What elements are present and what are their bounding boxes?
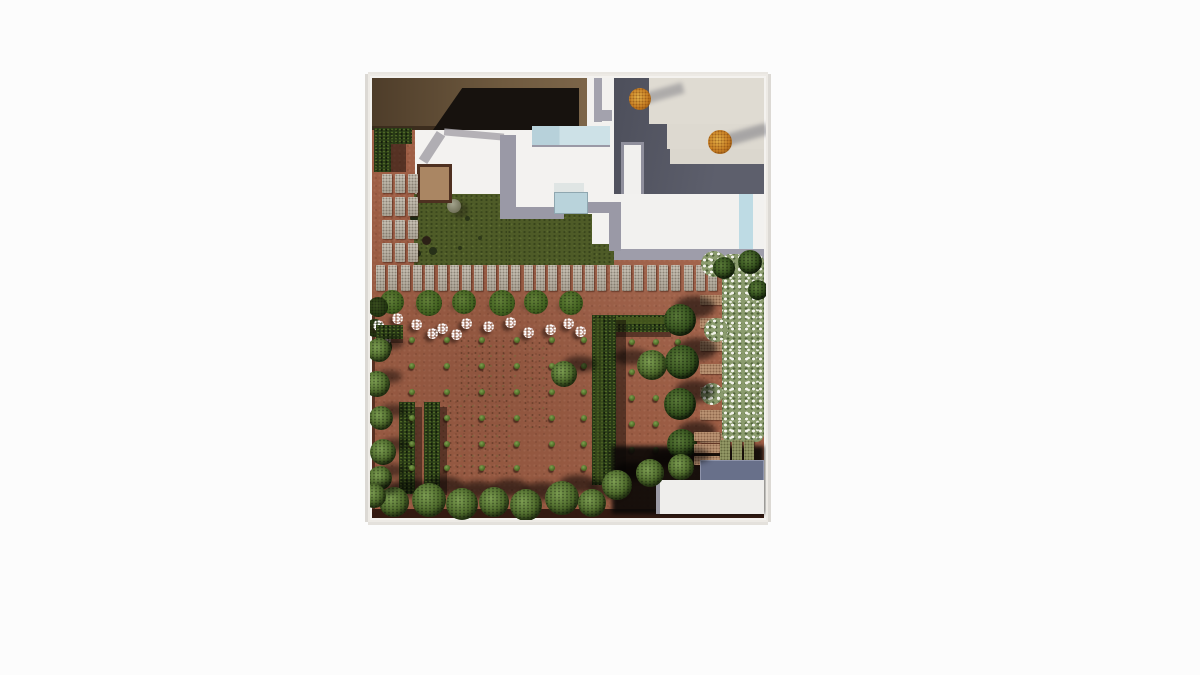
plant-grid-left <box>409 465 415 471</box>
lawn-plant <box>458 246 462 250</box>
tree <box>510 489 542 521</box>
stepping-stone-row <box>671 265 680 291</box>
stepping-stone <box>395 220 405 239</box>
shrub <box>368 297 388 317</box>
lawn-plant <box>429 247 437 255</box>
amber-tree <box>629 88 651 110</box>
shrub <box>524 290 548 314</box>
plant-grid-left <box>514 465 520 471</box>
plant-grid-left <box>444 389 450 395</box>
stepping-stone-row <box>511 265 520 291</box>
stepping-stone-row <box>388 265 397 291</box>
stepping-stone-row <box>474 265 483 291</box>
stepping-stone-row <box>413 265 422 291</box>
lawn <box>507 214 592 265</box>
tree <box>551 361 577 387</box>
stepping-stone-row <box>548 265 557 291</box>
tree <box>664 388 696 420</box>
plant-grid-left <box>409 441 415 447</box>
stepping-stone-row <box>376 265 385 291</box>
stepping-stone-row <box>684 265 693 291</box>
plant-grid-left <box>549 465 555 471</box>
plant-grid-right <box>653 421 659 427</box>
flower-cluster <box>483 321 494 332</box>
stepping-stone-row <box>536 265 545 291</box>
tree <box>748 280 768 300</box>
plant-grid-left <box>409 415 415 421</box>
plant-grid-left <box>581 441 587 447</box>
shrub <box>489 290 515 316</box>
tree <box>446 488 478 520</box>
tree <box>636 459 664 487</box>
tree <box>369 406 393 430</box>
stepping-stone <box>408 174 418 193</box>
plant-grid-left <box>581 465 587 471</box>
stepping-stone <box>720 440 730 461</box>
stepping-stone <box>382 197 392 216</box>
stepping-stone-row <box>487 265 496 291</box>
lawn-plant <box>465 216 470 221</box>
building-roof <box>658 480 764 514</box>
stepping-stone-row <box>425 265 434 291</box>
flowering-hedge <box>704 318 728 342</box>
plant-grid-left <box>514 389 520 395</box>
plant-grid-right <box>629 421 635 427</box>
shrub <box>452 290 476 314</box>
plant-grid-left <box>479 389 485 395</box>
stepping-stone-row <box>561 265 570 291</box>
plant-grid-left <box>581 415 587 421</box>
stepping-stone <box>395 174 405 193</box>
shrub <box>559 291 583 315</box>
flower-cluster <box>563 318 574 329</box>
stepping-stone <box>408 197 418 216</box>
hedge <box>374 144 391 172</box>
lap-pool <box>739 194 753 249</box>
plant-grid-left <box>514 415 520 421</box>
stepping-stone <box>395 197 405 216</box>
skylight-cube <box>554 192 588 214</box>
flower-cluster <box>523 327 534 338</box>
tree <box>738 250 762 274</box>
flower-cluster <box>461 318 472 329</box>
plant-grid-left <box>444 441 450 447</box>
amber-tree <box>708 130 732 154</box>
roof-path <box>609 202 621 251</box>
flower-cluster <box>575 326 586 337</box>
plant-grid-left <box>409 389 415 395</box>
tree <box>578 489 606 517</box>
stepping-stone-row <box>597 265 606 291</box>
plant-grid-left <box>549 415 555 421</box>
plant-grid-left <box>444 337 450 343</box>
tree <box>545 481 579 515</box>
stepping-stone-row <box>573 265 582 291</box>
hedge-top-face <box>595 318 603 482</box>
plant-grid-left <box>479 465 485 471</box>
plant-grid-left <box>444 465 450 471</box>
stepping-stone-row <box>659 265 668 291</box>
stepping-stone <box>382 174 392 193</box>
tree <box>412 483 446 517</box>
plant-grid-left <box>581 389 587 395</box>
stepping-stone-row <box>462 265 471 291</box>
plant-grid-left <box>444 363 450 369</box>
tree <box>713 257 735 279</box>
stepping-stone <box>694 432 720 441</box>
plant-grid-left <box>409 363 415 369</box>
flower-cluster <box>392 313 403 324</box>
stepping-stone-row <box>499 265 508 291</box>
stepping-stone-row <box>610 265 619 291</box>
tree <box>368 338 391 362</box>
stepping-stone-row <box>524 265 533 291</box>
plant-grid-right <box>653 339 659 345</box>
flower-cluster <box>437 323 448 334</box>
plant-grid-right <box>629 395 635 401</box>
plant-grid-left <box>514 441 520 447</box>
flower-cluster <box>545 324 556 335</box>
stepping-stone-row <box>585 265 594 291</box>
stepping-stone <box>382 220 392 239</box>
planter-box <box>417 164 452 203</box>
tree <box>637 350 667 380</box>
seedling-patch <box>440 398 512 474</box>
stepping-stone <box>408 243 418 262</box>
tree <box>665 345 699 379</box>
plant-grid-left <box>549 441 555 447</box>
plant-grid-left <box>479 415 485 421</box>
hedge-shadow <box>391 144 406 172</box>
stepping-stone-row <box>622 265 631 291</box>
stepping-stone-row <box>647 265 656 291</box>
plant-grid-left <box>444 415 450 421</box>
flower-cluster <box>411 319 422 330</box>
seedling-patch <box>458 338 516 400</box>
tree <box>479 487 509 517</box>
stepping-stone <box>395 243 405 262</box>
stepping-stone-row <box>401 265 410 291</box>
flower-cluster <box>505 317 516 328</box>
hedge <box>374 128 412 144</box>
plant-grid-left <box>549 389 555 395</box>
roof-wall <box>601 110 612 121</box>
plant-grid-left <box>549 337 555 343</box>
plant-grid-right <box>629 339 635 345</box>
tree <box>602 470 632 500</box>
tree <box>668 454 694 480</box>
plant-grid-left <box>479 441 485 447</box>
plant-grid-left <box>479 337 485 343</box>
seedling-patch <box>522 340 550 428</box>
tree <box>664 304 696 336</box>
stepping-stone <box>744 440 754 461</box>
flower-cluster <box>427 328 438 339</box>
tree <box>370 439 396 465</box>
plant-grid-left <box>479 363 485 369</box>
lawn-plant <box>422 236 431 245</box>
stepping-stone <box>382 243 392 262</box>
landscape-aerial-render <box>368 74 768 522</box>
shrub <box>416 290 442 316</box>
stepping-stone <box>732 440 742 461</box>
stepping-stone <box>408 220 418 239</box>
skylight-pool <box>532 126 610 147</box>
terrace-upper <box>649 78 764 124</box>
plant-grid-left <box>581 337 587 343</box>
stepping-stone-row <box>438 265 447 291</box>
stepping-stone-row <box>634 265 643 291</box>
plant-grid-left <box>409 337 415 343</box>
lawn-plant <box>478 236 482 240</box>
plant-grid-left <box>514 363 520 369</box>
plant-grid-right <box>629 369 635 375</box>
plant-grid-left <box>514 337 520 343</box>
plant-grid-right <box>653 395 659 401</box>
skylight-cube-top <box>554 183 584 192</box>
stepping-stone-row <box>450 265 459 291</box>
